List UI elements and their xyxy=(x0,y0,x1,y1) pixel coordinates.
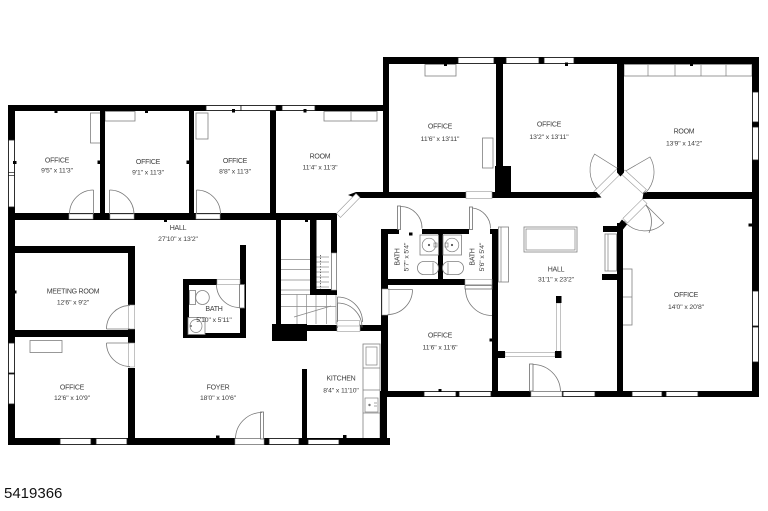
svg-text:11'6" x 13'11": 11'6" x 13'11" xyxy=(421,136,460,143)
svg-text:MEETING ROOM: MEETING ROOM xyxy=(47,289,100,296)
svg-text:ROOM: ROOM xyxy=(674,129,695,136)
svg-text:12'6" x 9'2": 12'6" x 9'2" xyxy=(57,300,90,307)
svg-text:31'1" x 23'2": 31'1" x 23'2" xyxy=(538,277,575,284)
svg-text:BATH: BATH xyxy=(205,306,222,313)
svg-text:OFFICE: OFFICE xyxy=(428,333,453,340)
svg-text:9'5" x 11'3": 9'5" x 11'3" xyxy=(41,168,73,175)
svg-text:27'10" x 13'2": 27'10" x 13'2" xyxy=(158,236,198,243)
svg-text:OFFICE: OFFICE xyxy=(674,292,699,299)
svg-text:13'2" x 13'11": 13'2" x 13'11" xyxy=(529,134,569,141)
svg-text:13'9" x 14'2": 13'9" x 14'2" xyxy=(666,141,703,148)
svg-text:OFFICE: OFFICE xyxy=(537,122,562,129)
svg-text:FOYER: FOYER xyxy=(207,385,230,392)
svg-text:18'0" x 10'6": 18'0" x 10'6" xyxy=(200,395,237,402)
svg-text:5'6" x 5'4": 5'6" x 5'4" xyxy=(479,242,486,271)
svg-text:11'4" x 11'3": 11'4" x 11'3" xyxy=(303,165,339,172)
svg-text:8'4" x 11'10": 8'4" x 11'10" xyxy=(323,388,359,395)
svg-text:HALL: HALL xyxy=(548,267,565,274)
svg-text:9'1" x 11'3": 9'1" x 11'3" xyxy=(132,170,164,177)
svg-text:OFFICE: OFFICE xyxy=(136,159,161,166)
svg-text:BATH: BATH xyxy=(470,248,477,265)
svg-text:12'6" x 10'9": 12'6" x 10'9" xyxy=(54,395,91,402)
svg-text:5'7" x 5'4": 5'7" x 5'4" xyxy=(404,242,411,271)
svg-text:KITCHEN: KITCHEN xyxy=(327,376,356,383)
svg-text:14'0" x 20'8": 14'0" x 20'8" xyxy=(668,304,705,311)
svg-text:8'8" x 11'3": 8'8" x 11'3" xyxy=(219,169,251,176)
svg-text:HALL: HALL xyxy=(170,225,187,232)
svg-text:BATH: BATH xyxy=(395,248,402,265)
svg-text:OFFICE: OFFICE xyxy=(45,158,70,165)
svg-text:11'6" x 11'6": 11'6" x 11'6" xyxy=(423,345,459,352)
svg-text:OFFICE: OFFICE xyxy=(428,124,453,131)
svg-text:5419366: 5419366 xyxy=(4,485,62,502)
svg-text:OFFICE: OFFICE xyxy=(223,158,248,165)
svg-text:OFFICE: OFFICE xyxy=(60,385,85,392)
svg-text:ROOM: ROOM xyxy=(310,154,331,161)
svg-text:5'10" x 5'11": 5'10" x 5'11" xyxy=(196,317,232,324)
